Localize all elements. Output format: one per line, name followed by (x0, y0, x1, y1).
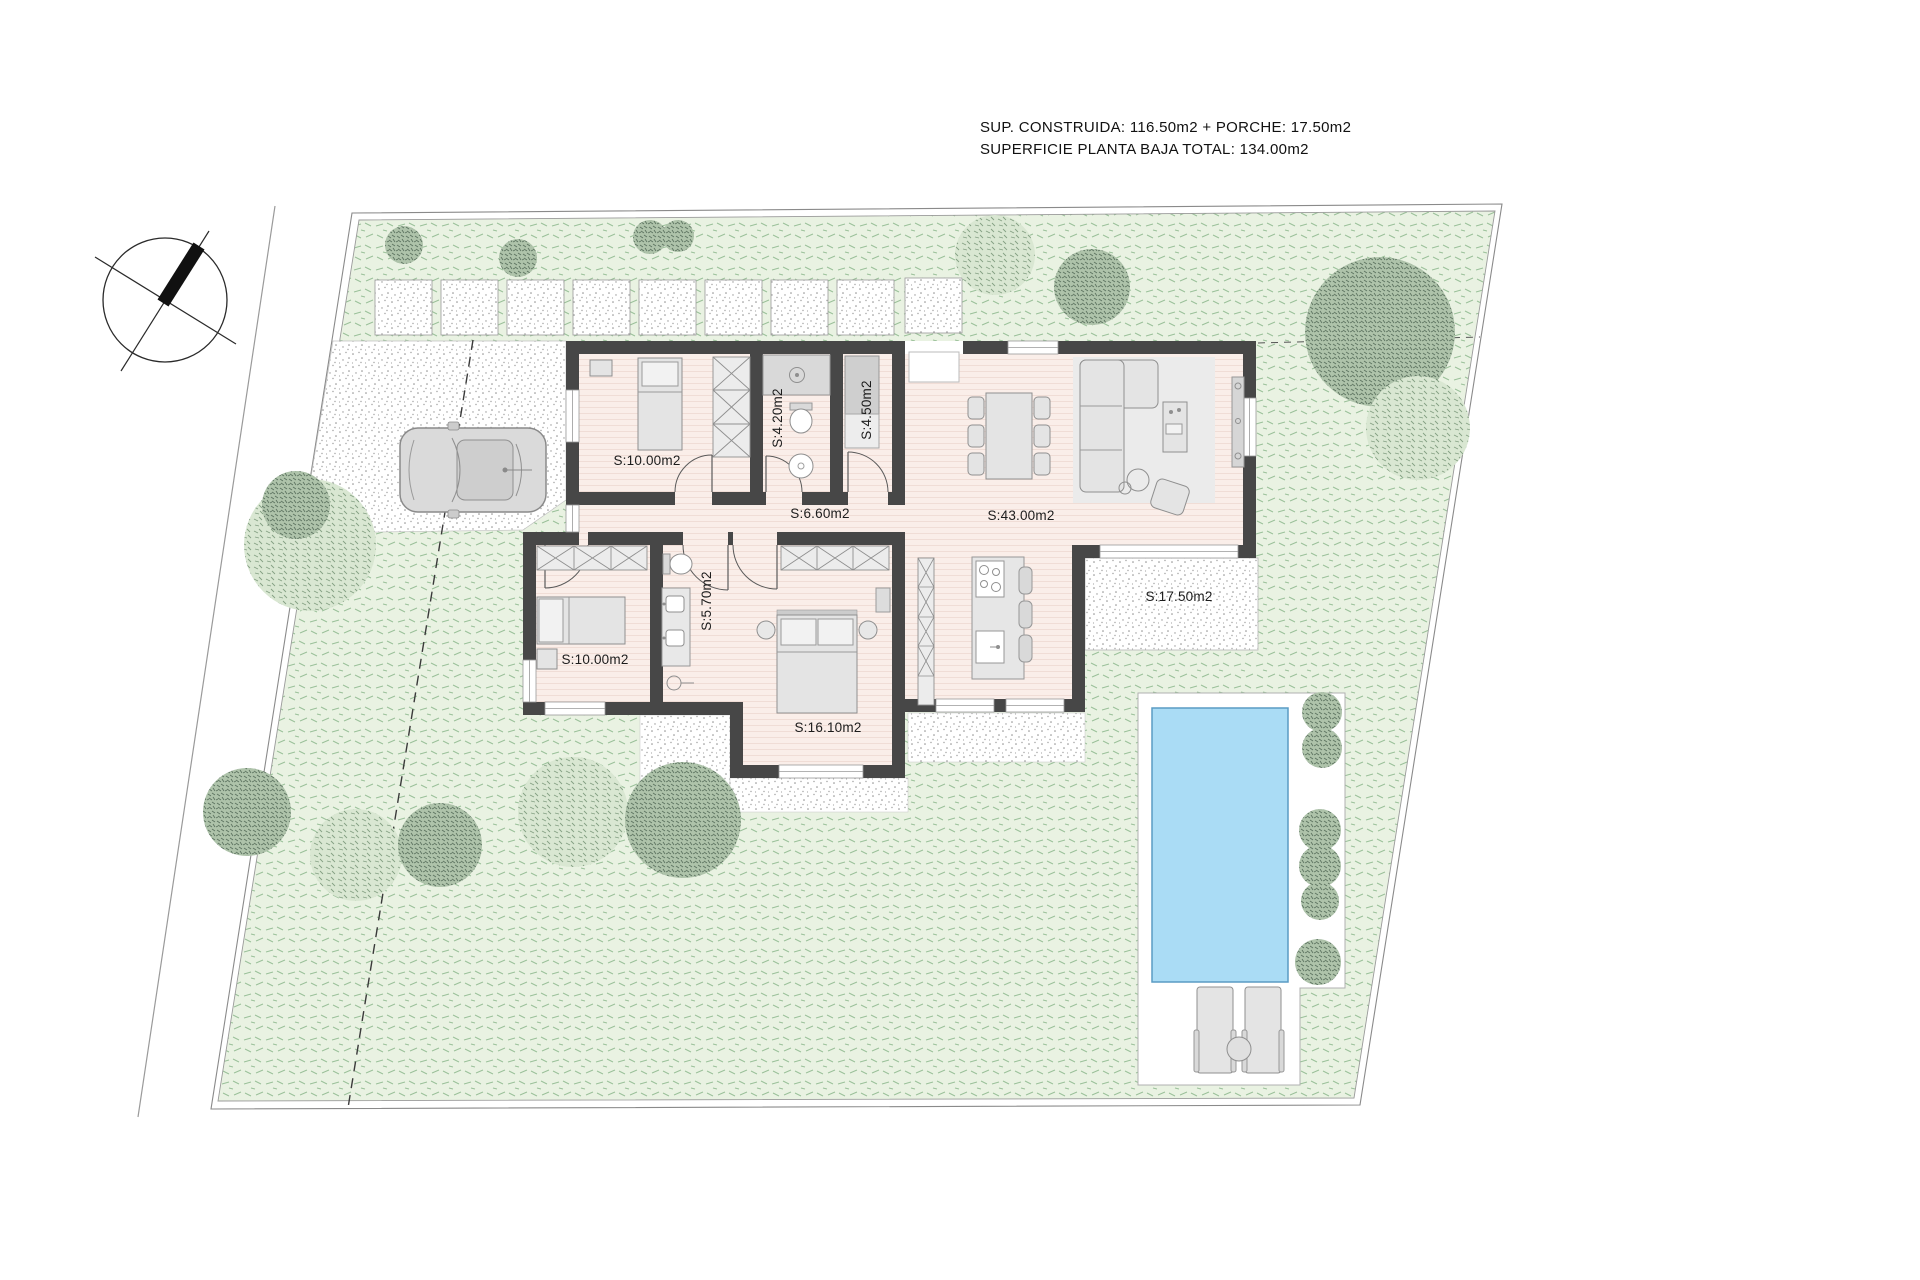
sink (666, 596, 684, 612)
room-label-bathroom-2: S:5.70m2 (699, 571, 714, 630)
area-annotation: SUP. CONSTRUIDA: 116.50m2 + PORCHE: 17.5… (980, 119, 1351, 158)
tree (310, 809, 402, 901)
tree (633, 220, 667, 254)
bedside-table (859, 621, 877, 639)
wardrobe (781, 546, 889, 570)
entrance (905, 341, 963, 382)
bedside-table (757, 621, 775, 639)
tree (1366, 376, 1470, 480)
sink (666, 630, 684, 646)
room-label-bedroom-1: S:10.00m2 (613, 453, 680, 468)
car-mirror (448, 422, 459, 430)
tree (385, 226, 423, 264)
toilet (670, 554, 692, 574)
car-mirror (448, 510, 459, 518)
toilet (790, 409, 812, 433)
annotation-line-1: SUP. CONSTRUIDA: 116.50m2 + PORCHE: 17.5… (980, 119, 1351, 136)
pillow (781, 619, 816, 645)
bar-stools (1019, 567, 1032, 662)
car (400, 422, 546, 518)
annotation-line-2: SUPERFICIE PLANTA BAJA TOTAL: 134.00m2 (980, 141, 1309, 158)
porch-sliding-door (1100, 545, 1238, 558)
sofa (1080, 360, 1124, 492)
cooktop (976, 561, 1004, 597)
room-label-bedroom-2: S:10.00m2 (561, 652, 628, 667)
site-plan-drawing: S:10.00m2 S:4.20m2 S:4.50m2 S:6.60m2 S:4… (0, 0, 1920, 1280)
swimming-pool (1152, 708, 1288, 982)
north-arrow-icon (95, 231, 236, 371)
pillow (818, 619, 853, 645)
tree (262, 471, 330, 539)
nightstand (590, 360, 612, 376)
nightstand (537, 649, 557, 669)
tree (398, 803, 482, 887)
large-tree (625, 762, 741, 878)
dining-table (986, 393, 1032, 479)
tree (1054, 249, 1130, 325)
room-label-bathroom-1: S:4.20m2 (770, 388, 785, 447)
wardrobe (537, 546, 647, 570)
stepping-stones (375, 278, 962, 335)
pool-side-table (1227, 1037, 1251, 1061)
tree (955, 215, 1035, 295)
dresser (876, 588, 890, 612)
tree (499, 239, 537, 277)
room-label-porch: S:17.50m2 (1145, 589, 1212, 604)
tree (203, 768, 291, 856)
room-label-master-bedroom: S:16.10m2 (794, 720, 861, 735)
large-tree (518, 757, 628, 867)
tree (662, 220, 694, 252)
sink (789, 454, 813, 478)
porch-terrace (1085, 558, 1258, 650)
room-label-laundry-bath: S:4.50m2 (859, 380, 874, 439)
pantry-column (918, 558, 934, 705)
room-label-living: S:43.00m2 (987, 508, 1054, 523)
site-plan-page: S:10.00m2 S:4.20m2 S:4.50m2 S:6.60m2 S:4… (0, 0, 1920, 1280)
pillow (642, 362, 678, 386)
room-label-hallway: S:6.60m2 (790, 506, 849, 521)
wardrobe (713, 357, 750, 457)
pillow (539, 599, 563, 642)
